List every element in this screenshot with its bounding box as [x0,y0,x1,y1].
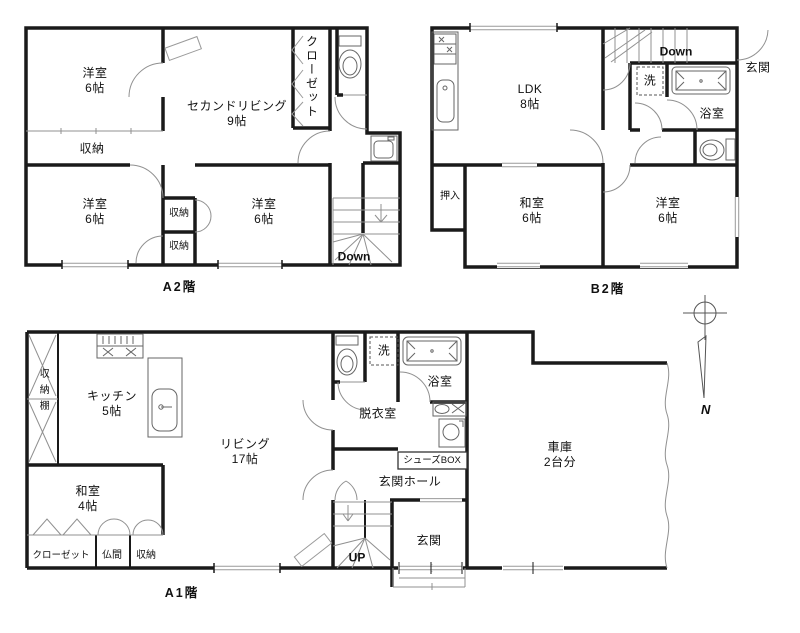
room-label-a1-washitsu: 和室 4帖 [75,484,100,514]
room-label-a2-closet: クローゼット [304,35,319,119]
room-label-a2-second-living: セカンドリビング 9帖 [187,99,287,129]
room-label-a1-living: リビング 17帖 [220,437,270,467]
room-label-b2-bedroom: 洋室 6帖 [655,196,680,226]
room-label-a1-dressing: 脱衣室 [359,407,397,422]
room-label-a1-butsuma: 仏間 [102,550,122,563]
floor-caption-a2: A2階 [163,280,197,296]
room-label-a2-bedroom-se: 洋室 6帖 [251,197,276,227]
stairs-label-a2-down: Down [338,250,371,265]
room-label-a2-storage-top: 収納 [79,142,104,157]
a1-windows [214,497,564,574]
toilet-icon-a2 [339,36,361,78]
floorplan-page: 洋室 6帖 セカンドリビング 9帖 クローゼット 収納 洋室 6帖 収納 収納 … [0,0,800,633]
room-label-b2-ldk: LDK 8帖 [518,82,543,112]
washbasin-icon-a2 [371,136,397,161]
floorplan-drawing [0,0,800,633]
room-label-a2-storage-bot: 収納 [169,241,189,254]
room-label-a1-storage: 収納 [136,550,156,563]
stove-icon-a1 [97,334,143,358]
bathtub-icon-a1 [403,337,461,365]
floor-caption-b2: B2階 [591,282,625,298]
room-label-a1-kitchen: キッチン 5帖 [87,389,137,419]
room-label-a1-closet: クローゼット [32,550,89,562]
floor-caption-a1: A1階 [165,586,199,602]
washbasin-icon-a1 [433,402,466,447]
compass-north-label: N [701,402,711,418]
floor-b2-plan [432,23,768,268]
room-label-a2-bedroom-nw: 洋室 6帖 [82,66,107,96]
toilet-icon-a1 [336,336,358,375]
a2-vent [165,37,201,61]
room-label-a1-entrance-hall: 玄関ホール [379,475,442,490]
bathtub-icon-b2 [672,67,730,94]
room-label-a2-storage-mid: 収納 [169,208,189,221]
a1-medium-walls [58,332,365,568]
room-label-a1-garage: 車庫 2台分 [544,440,576,470]
toilet-icon-b2 [700,139,735,160]
room-label-a2-bedroom-sw: 洋室 6帖 [82,197,107,227]
a1-stairs-arrow [343,505,353,521]
room-label-b2-washitsu: 和室 6帖 [519,196,544,226]
room-label-a1-shoes-box: シューズBOX [403,455,461,467]
b2-windows [470,23,741,268]
room-label-b2-bath: 浴室 [699,107,724,122]
a1-vent [294,534,331,567]
compass [683,295,727,398]
a2-stairs-arrow [375,204,387,222]
room-label-a1-entrance: 玄関 [416,534,441,549]
stairs-label-b2-down: Down [660,45,693,60]
b2-walls [432,28,737,267]
room-label-b2-oshiire: 押入 [440,191,460,204]
room-label-a1-laundry: 洗 [378,344,391,359]
compass-cross [683,295,727,340]
sink-icon-a1 [148,358,182,437]
room-label-b2-entrance: 玄関 [745,61,770,76]
kitchen-unit-b2 [432,32,458,130]
room-label-a1-bath: 浴室 [427,375,452,390]
room-label-a1-storage-shelf: 収納棚 [36,368,49,416]
stairs-label-a1-up: UP [349,551,366,566]
room-label-b2-laundry: 洗 [644,74,657,89]
garage-open-edge [665,363,668,568]
compass-needle [698,336,706,398]
